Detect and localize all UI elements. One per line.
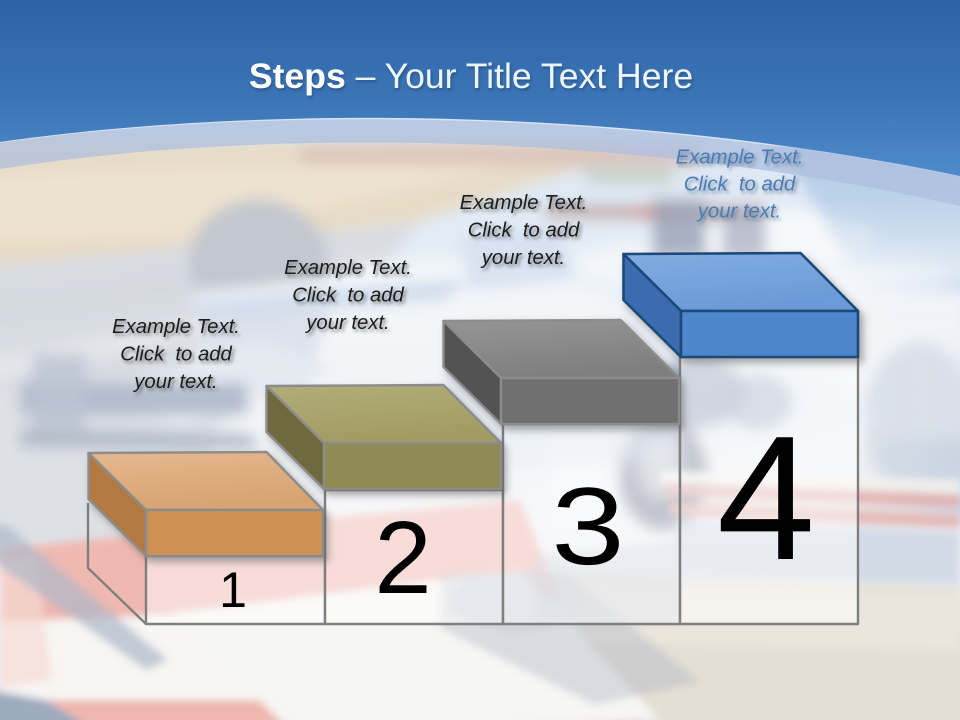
svg-text:3: 3 bbox=[551, 464, 624, 587]
svg-text:Steps – Your Title Text Here: Steps – Your Title Text Here bbox=[249, 56, 693, 96]
svg-text:Click to add: Click to add bbox=[684, 174, 796, 196]
svg-text:your text.: your text. bbox=[132, 371, 217, 393]
svg-text:Click to add: Click to add bbox=[120, 343, 232, 365]
svg-text:Click to add: Click to add bbox=[468, 219, 580, 241]
svg-text:2: 2 bbox=[374, 500, 431, 615]
svg-text:your text.: your text. bbox=[696, 201, 781, 223]
svg-text:Example Text.: Example Text. bbox=[112, 316, 240, 338]
svg-text:your text.: your text. bbox=[304, 312, 389, 334]
svg-text:Example Text.: Example Text. bbox=[676, 147, 804, 169]
svg-text:4: 4 bbox=[717, 399, 815, 597]
svg-text:Example Text.: Example Text. bbox=[284, 257, 412, 279]
svg-text:1: 1 bbox=[219, 562, 247, 618]
svg-text:your text.: your text. bbox=[480, 247, 565, 269]
svg-text:Example Text.: Example Text. bbox=[460, 192, 588, 214]
svg-text:Click to add: Click to add bbox=[292, 284, 404, 306]
